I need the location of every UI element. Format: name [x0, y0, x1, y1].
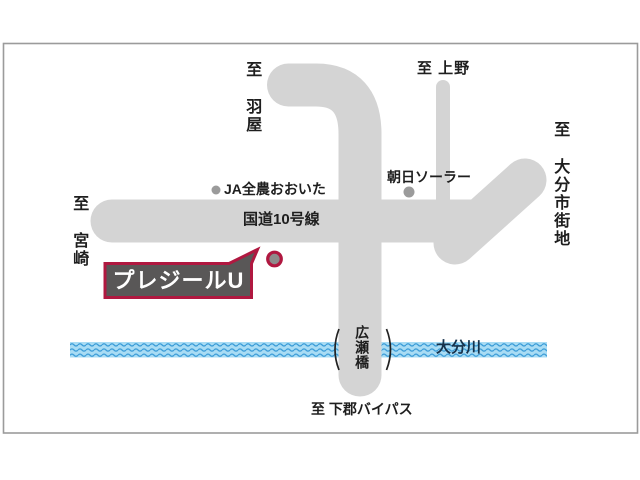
- label-ja-zennoh: JA全農おおいた: [224, 182, 326, 197]
- label-oita-river: 大分川: [436, 340, 481, 356]
- dealer-location-dot: [268, 252, 282, 266]
- label-to-oita-city: 至 大分市街地: [551, 121, 568, 248]
- poi-dot-ja-zennoh: [212, 186, 221, 195]
- label-to-haneya: 至 羽屋: [243, 61, 260, 134]
- poi-dot-asahi-solar: [404, 187, 415, 198]
- label-to-shimogori-bypass: 至 下郡バイパス: [311, 402, 413, 417]
- label-asahi-solar: 朝日ソーラー: [387, 170, 471, 185]
- dealer-callout-label: プレジールU: [105, 263, 252, 298]
- label-route10: 国道10号線: [243, 212, 320, 228]
- label-hirose-bridge: 広瀬橋: [354, 325, 369, 370]
- label-to-miyazaki: 至 宮崎: [70, 195, 87, 268]
- map-canvas: 至 羽屋 至 上野 至 大分市街地 至 宮崎 JA全農おおいた 国道10号線 朝…: [0, 0, 640, 480]
- label-to-ueno: 至 上野: [417, 61, 470, 77]
